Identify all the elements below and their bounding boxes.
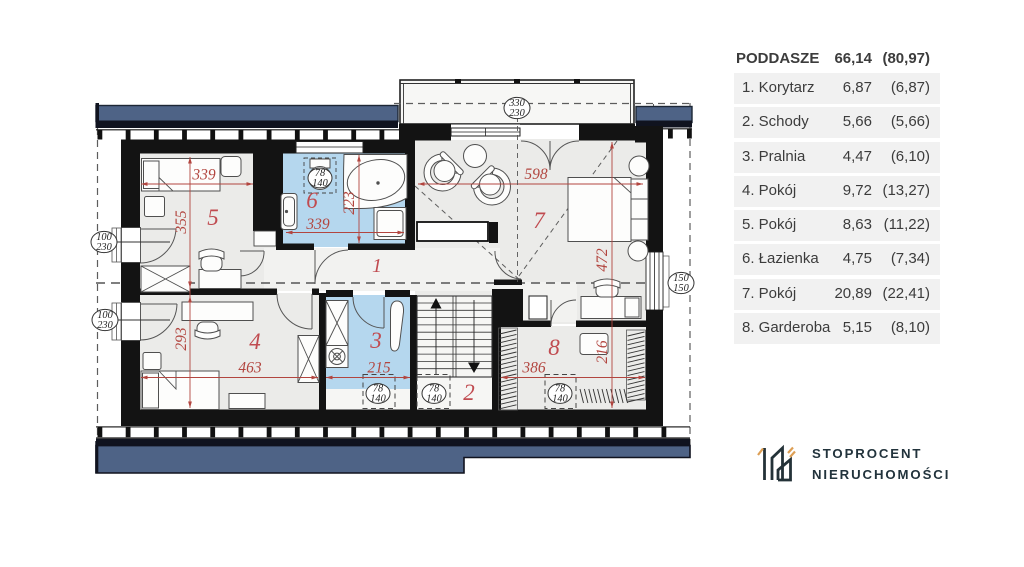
svg-text:463: 463 bbox=[238, 360, 262, 377]
svg-text:140: 140 bbox=[552, 393, 568, 404]
svg-text:293: 293 bbox=[173, 327, 190, 351]
svg-text:230: 230 bbox=[97, 320, 113, 331]
svg-text:140: 140 bbox=[312, 178, 328, 189]
svg-text:5: 5 bbox=[207, 205, 219, 230]
svg-text:4: 4 bbox=[249, 329, 261, 354]
svg-text:215: 215 bbox=[367, 360, 391, 377]
svg-text:230: 230 bbox=[96, 242, 112, 253]
svg-text:598: 598 bbox=[524, 166, 548, 183]
svg-text:216: 216 bbox=[594, 340, 611, 364]
svg-text:7: 7 bbox=[533, 208, 546, 233]
svg-text:3: 3 bbox=[369, 328, 382, 353]
svg-text:339: 339 bbox=[305, 216, 330, 233]
svg-text:223: 223 bbox=[341, 191, 358, 215]
svg-text:6: 6 bbox=[306, 188, 318, 213]
svg-text:472: 472 bbox=[594, 248, 611, 272]
svg-text:140: 140 bbox=[370, 393, 386, 404]
svg-text:1: 1 bbox=[372, 255, 382, 277]
svg-text:8: 8 bbox=[548, 335, 560, 360]
svg-text:386: 386 bbox=[521, 360, 546, 377]
svg-text:230: 230 bbox=[509, 108, 525, 119]
svg-text:2: 2 bbox=[463, 380, 475, 405]
svg-text:339: 339 bbox=[191, 167, 216, 184]
svg-text:140: 140 bbox=[426, 393, 442, 404]
svg-text:355: 355 bbox=[173, 210, 190, 235]
svg-text:150: 150 bbox=[673, 283, 689, 294]
